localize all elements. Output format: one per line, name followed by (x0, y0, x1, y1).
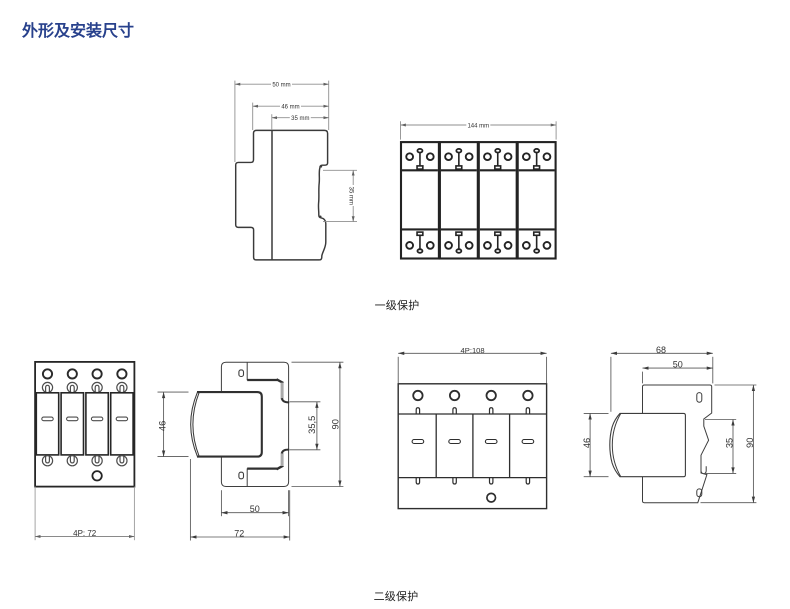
svg-text:90: 90 (745, 438, 755, 448)
svg-text:46: 46 (582, 438, 592, 448)
svg-text:90: 90 (331, 419, 341, 429)
svg-text:50: 50 (673, 360, 683, 370)
svg-text:144 mm: 144 mm (467, 123, 489, 129)
svg-text:4P: 72: 4P: 72 (73, 529, 97, 538)
svg-text:46: 46 (158, 421, 168, 431)
svg-text:50: 50 (250, 504, 260, 514)
svg-text:35,5: 35,5 (307, 416, 317, 434)
svg-text:35: 35 (725, 438, 735, 448)
svg-text:72: 72 (234, 528, 244, 538)
svg-text:4P:108: 4P:108 (461, 346, 485, 355)
svg-text:50 mm: 50 mm (272, 83, 290, 89)
svg-text:35 mm: 35 mm (348, 187, 354, 205)
svg-text:35 mm: 35 mm (291, 116, 309, 122)
svg-text:46 mm: 46 mm (281, 105, 299, 111)
svg-text:68: 68 (656, 345, 666, 355)
